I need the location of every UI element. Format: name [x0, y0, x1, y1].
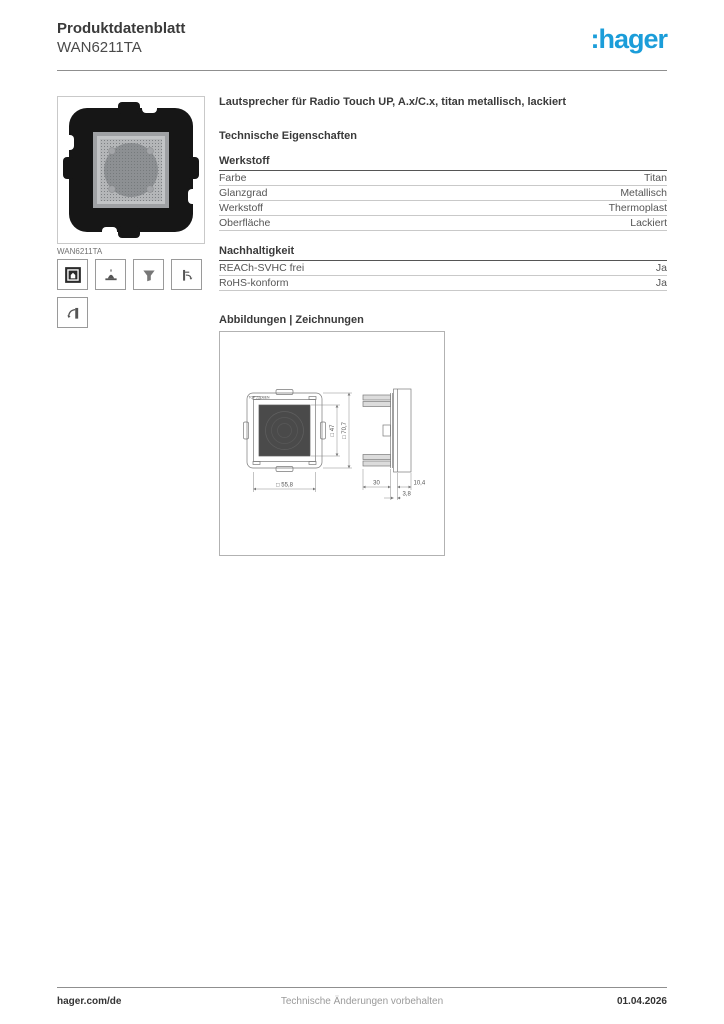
datasheet-page: Produktdatenblatt WAN6211TA :hager — [0, 0, 724, 1024]
flush-mount-icon — [57, 259, 88, 290]
dim-frame-depth: 10,4 — [414, 481, 426, 487]
dimension-drawing: TOP △ OBEN □ 55,8 □ 47 □ 70,7 — [220, 332, 444, 555]
product-reference: WAN6211TA — [57, 39, 142, 56]
speaker-direction-icon — [171, 259, 202, 290]
group-heading-nachhaltigkeit: Nachhaltigkeit — [219, 245, 667, 261]
hager-logo: :hager — [590, 24, 667, 55]
table-row: RoHS-konform Ja — [219, 276, 667, 291]
dim-offset: 3,8 — [403, 492, 412, 498]
property-label: Werkstoff — [219, 202, 263, 214]
drawing-orientation-label: TOP △ OBEN — [249, 396, 270, 400]
footer: hager.com/de Technische Änderungen vorbe… — [57, 996, 667, 1010]
header-divider — [57, 70, 667, 71]
table-row: Werkstoff Thermoplast — [219, 201, 667, 216]
dim-front-width: □ 55,8 — [276, 483, 294, 489]
properties-column: Lautsprecher für Radio Touch UP, A.x/C.x… — [219, 96, 667, 556]
property-label: Oberfläche — [219, 217, 270, 229]
horn-speaker-icon — [57, 297, 88, 328]
footer-note: Technische Änderungen vorbehalten — [281, 996, 443, 1007]
property-value: Thermoplast — [609, 202, 667, 214]
table-row: Farbe Titan — [219, 171, 667, 186]
property-label: REACh-SVHC frei — [219, 262, 304, 274]
product-image-caption: WAN6211TA — [57, 247, 102, 256]
table-row: REACh-SVHC frei Ja — [219, 261, 667, 276]
footer-date: 01.04.2026 — [617, 996, 667, 1007]
property-label: Glanzgrad — [219, 187, 267, 199]
technical-drawing: TOP △ OBEN □ 55,8 □ 47 □ 70,7 — [219, 331, 445, 556]
funnel-icon — [133, 259, 164, 290]
claw-fixing-icon — [95, 259, 126, 290]
property-value: Ja — [656, 262, 667, 274]
product-title: Lautsprecher für Radio Touch UP, A.x/C.x… — [219, 96, 667, 108]
property-label: RoHS-konform — [219, 277, 288, 289]
product-image — [57, 96, 205, 244]
drawings-heading: Abbildungen | Zeichnungen — [219, 314, 667, 326]
dim-outer-square: □ 70,7 — [342, 421, 348, 439]
property-value: Metallisch — [620, 187, 667, 199]
footer-website-link[interactable]: hager.com/de — [57, 996, 121, 1007]
speaker-product-photo — [58, 97, 204, 243]
feature-icon-grid — [57, 259, 217, 328]
table-row: Oberfläche Lackiert — [219, 216, 667, 231]
footer-divider — [57, 987, 667, 988]
dim-depth: 30 — [373, 481, 380, 487]
group-heading-werkstoff: Werkstoff — [219, 155, 667, 171]
property-value: Ja — [656, 277, 667, 289]
dim-inner-square: □ 47 — [330, 424, 336, 437]
table-row: Glanzgrad Metallisch — [219, 186, 667, 201]
tech-properties-heading: Technische Eigenschaften — [219, 130, 667, 142]
property-value: Lackiert — [630, 217, 667, 229]
doc-type-title: Produktdatenblatt — [57, 20, 185, 37]
property-label: Farbe — [219, 172, 246, 184]
property-value: Titan — [644, 172, 667, 184]
